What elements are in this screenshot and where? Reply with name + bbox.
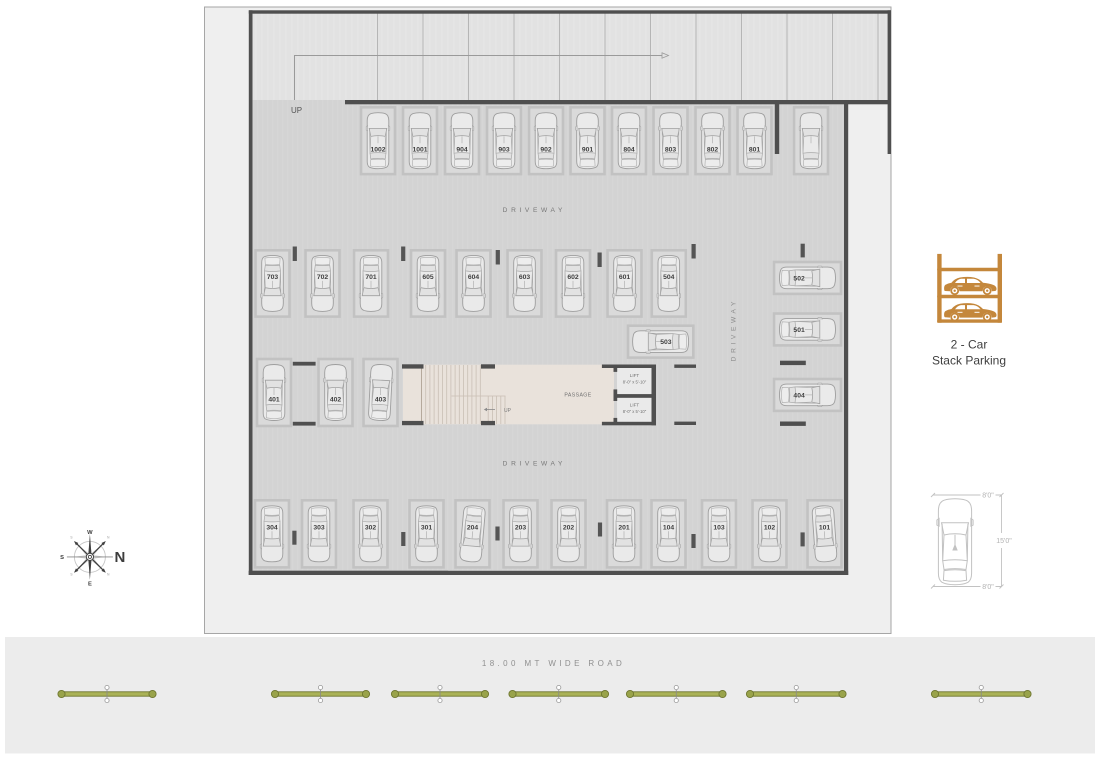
- svg-text:D R I V E W A Y: D R I V E W A Y: [503, 461, 564, 468]
- svg-text:202: 202: [563, 525, 575, 532]
- svg-text:E: E: [88, 582, 92, 588]
- svg-text:904: 904: [456, 146, 468, 153]
- svg-text:503: 503: [660, 339, 672, 346]
- svg-text:801: 801: [749, 146, 761, 153]
- svg-text:LIFT: LIFT: [630, 373, 640, 378]
- svg-text:803: 803: [665, 146, 677, 153]
- svg-text:804: 804: [623, 146, 635, 153]
- svg-text:604: 604: [468, 274, 480, 281]
- svg-text:902: 902: [540, 146, 552, 153]
- svg-text:303: 303: [313, 525, 325, 532]
- svg-text:702: 702: [317, 274, 329, 281]
- svg-text:401: 401: [268, 397, 280, 404]
- svg-text:N: N: [115, 549, 126, 566]
- svg-text:204: 204: [467, 525, 479, 532]
- svg-text:605: 605: [422, 274, 434, 281]
- svg-text:15'0": 15'0": [996, 538, 1012, 545]
- svg-text:301: 301: [421, 525, 433, 532]
- svg-text:802: 802: [707, 146, 719, 153]
- svg-text:602: 602: [567, 274, 579, 281]
- svg-text:302: 302: [365, 525, 377, 532]
- svg-text:201: 201: [618, 525, 630, 532]
- svg-text:UP: UP: [504, 408, 512, 414]
- svg-text:1002: 1002: [370, 146, 385, 153]
- svg-text:403: 403: [375, 397, 387, 404]
- svg-text:S: S: [70, 572, 72, 576]
- svg-text:D R I V E W A Y: D R I V E W A Y: [503, 207, 564, 214]
- svg-text:LIFT: LIFT: [630, 402, 640, 407]
- svg-text:104: 104: [663, 525, 675, 532]
- svg-text:S: S: [60, 555, 64, 561]
- svg-text:2 - Car: 2 - Car: [951, 338, 988, 352]
- svg-text:103: 103: [713, 525, 725, 532]
- svg-text:603: 603: [519, 274, 531, 281]
- svg-text:8'-0" x 5'-10": 8'-0" x 5'-10": [623, 409, 647, 414]
- svg-text:S: S: [70, 536, 72, 540]
- svg-text:304: 304: [266, 525, 278, 532]
- svg-text:703: 703: [267, 274, 279, 281]
- svg-text:18.00 MT WIDE ROAD: 18.00 MT WIDE ROAD: [482, 659, 625, 668]
- svg-text:404: 404: [793, 393, 805, 400]
- svg-text:501: 501: [793, 327, 805, 334]
- svg-text:1001: 1001: [412, 146, 427, 153]
- svg-text:701: 701: [365, 274, 377, 281]
- svg-text:UP: UP: [291, 106, 302, 115]
- svg-text:8'0": 8'0": [982, 493, 994, 500]
- svg-text:504: 504: [663, 274, 675, 281]
- svg-text:203: 203: [515, 525, 527, 532]
- svg-text:601: 601: [619, 274, 631, 281]
- svg-text:8'0": 8'0": [982, 584, 994, 591]
- svg-text:Stack Parking: Stack Parking: [932, 354, 1006, 368]
- svg-text:402: 402: [330, 397, 342, 404]
- svg-text:101: 101: [819, 525, 831, 532]
- svg-text:102: 102: [764, 525, 776, 532]
- svg-text:901: 901: [582, 146, 594, 153]
- svg-text:W: W: [87, 530, 93, 536]
- svg-text:8'-0" x 5'-10": 8'-0" x 5'-10": [623, 380, 647, 385]
- svg-text:502: 502: [793, 276, 805, 283]
- svg-text:PASSAGE: PASSAGE: [564, 393, 591, 399]
- svg-text:903: 903: [498, 146, 510, 153]
- svg-text:D R I V E W A Y: D R I V E W A Y: [731, 301, 738, 362]
